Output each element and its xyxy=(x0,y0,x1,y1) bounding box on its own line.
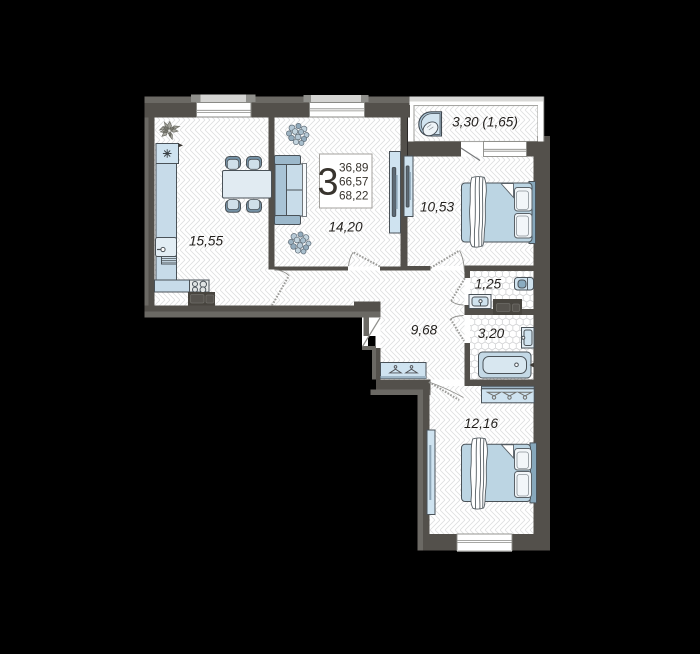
svg-text:36,89: 36,89 xyxy=(339,161,369,175)
svg-text:3: 3 xyxy=(317,162,338,204)
svg-text:9,68: 9,68 xyxy=(411,323,438,338)
svg-text:10,53: 10,53 xyxy=(420,200,454,215)
svg-text:14,20: 14,20 xyxy=(328,220,362,235)
svg-text:3,20: 3,20 xyxy=(478,326,505,341)
svg-text:15,55: 15,55 xyxy=(189,234,223,249)
svg-text:3,30 (1,65): 3,30 (1,65) xyxy=(452,115,518,130)
svg-text:66,57: 66,57 xyxy=(339,175,369,189)
svg-text:68,22: 68,22 xyxy=(339,189,369,203)
svg-text:1,25: 1,25 xyxy=(475,277,502,292)
svg-text:12,16: 12,16 xyxy=(464,416,498,431)
